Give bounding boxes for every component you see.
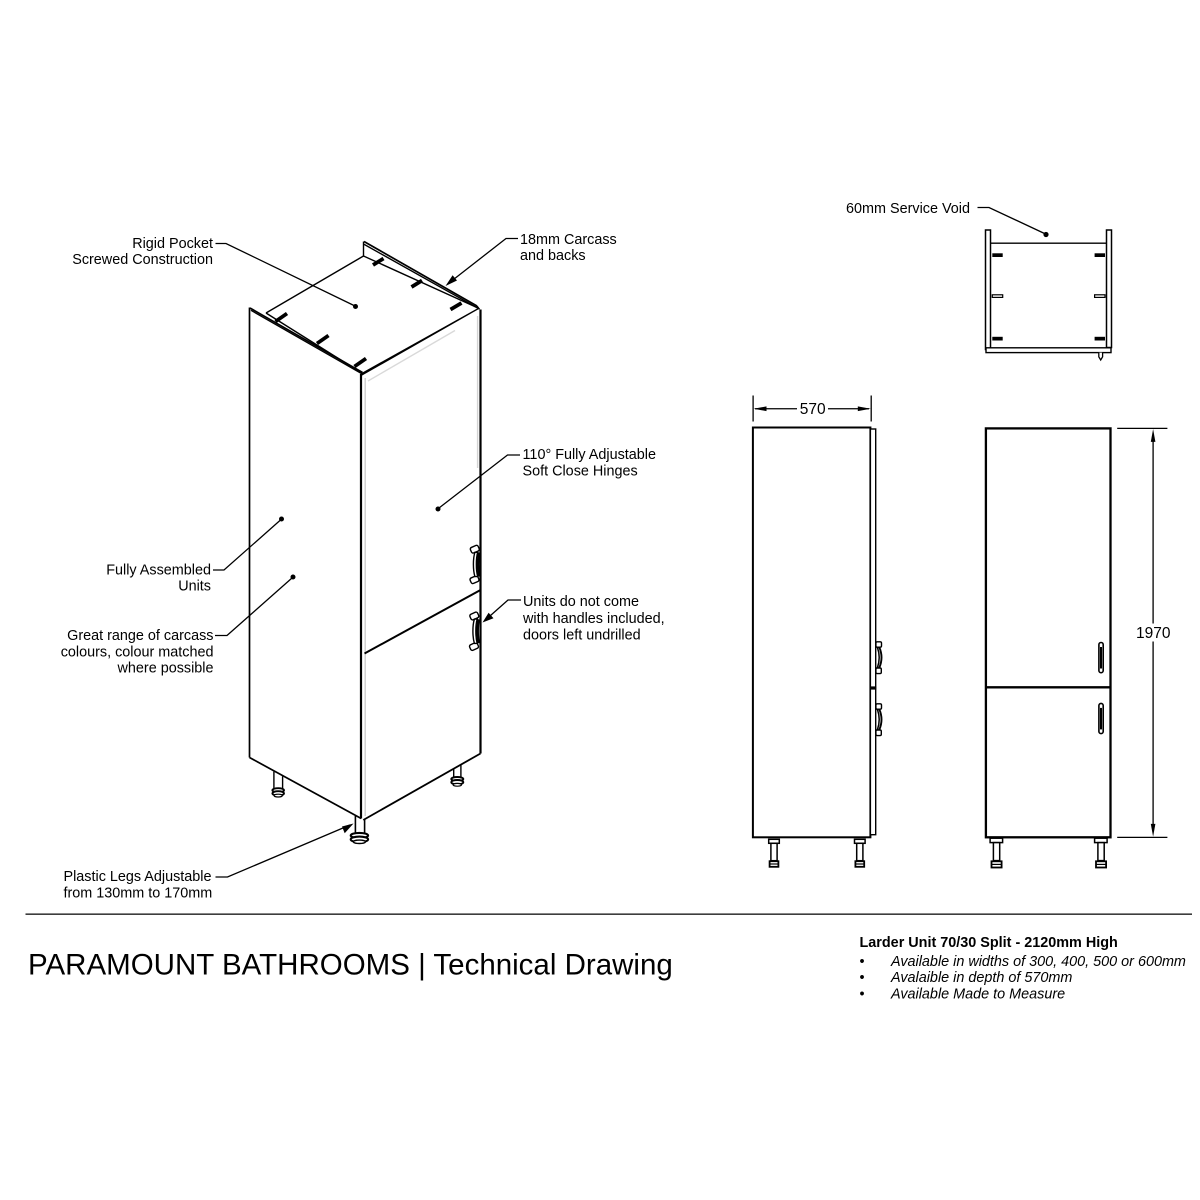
- svg-text:18mm Carcass: 18mm Carcass: [520, 232, 617, 248]
- svg-text:where possible: where possible: [117, 660, 214, 676]
- svg-text:110° Fully Adjustable: 110° Fully Adjustable: [523, 447, 657, 463]
- svg-text:570: 570: [800, 401, 826, 418]
- svg-text:•: •: [860, 970, 865, 986]
- svg-text:from 130mm to 170mm: from 130mm to 170mm: [64, 885, 213, 901]
- svg-text:•: •: [860, 954, 865, 970]
- svg-text:Fully Assembled: Fully Assembled: [106, 563, 211, 579]
- svg-text:Rigid Pocket: Rigid Pocket: [132, 236, 213, 252]
- svg-text:60mm Service Void: 60mm Service Void: [846, 201, 970, 217]
- svg-text:and backs: and backs: [520, 248, 586, 264]
- svg-text:with handles included,: with handles included,: [522, 611, 665, 627]
- svg-text:Screwed Construction: Screwed Construction: [72, 252, 213, 268]
- svg-text:Avalaible in depth of 570mm: Avalaible in depth of 570mm: [890, 970, 1072, 986]
- svg-text:Available Made to Measure: Available Made to Measure: [890, 986, 1065, 1002]
- svg-text:Available in widths of 300, 40: Available in widths of 300, 400, 500 or …: [890, 954, 1186, 970]
- svg-text:colours, colour matched: colours, colour matched: [61, 644, 214, 660]
- svg-text:Units do not come: Units do not come: [523, 594, 639, 610]
- svg-text:doors left undrilled: doors left undrilled: [523, 627, 641, 643]
- svg-text:•: •: [860, 986, 865, 1002]
- svg-text:Great range of carcass: Great range of carcass: [67, 628, 213, 644]
- svg-text:Soft Close Hinges: Soft Close Hinges: [523, 463, 638, 479]
- svg-text:1970: 1970: [1136, 625, 1171, 642]
- svg-text:Larder Unit 70/30 Split - 2120: Larder Unit 70/30 Split - 2120mm High: [860, 935, 1118, 951]
- svg-text:Units: Units: [178, 579, 211, 595]
- svg-text:PARAMOUNT BATHROOMS | Technica: PARAMOUNT BATHROOMS | Technical Drawing: [28, 949, 673, 982]
- svg-text:Plastic Legs Adjustable: Plastic Legs Adjustable: [64, 869, 212, 885]
